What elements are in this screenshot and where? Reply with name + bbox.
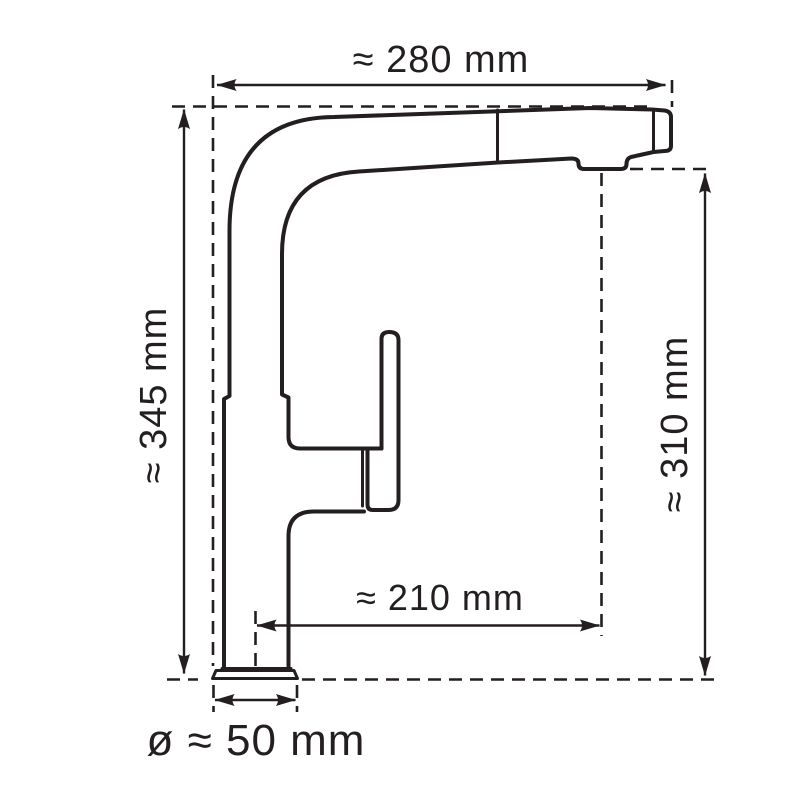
dim-label-middle-reach: ≈ 210 mm: [356, 577, 524, 618]
handle-lever: [368, 332, 399, 510]
base-plate: [213, 671, 298, 679]
diagram-canvas: ≈ 280 mm ≈ 345 mm ≈ 310 mm ≈ 210 mm ø ≈ …: [0, 0, 800, 800]
dim-label-right-height: ≈ 310 mm: [654, 336, 696, 513]
dim-label-base-diameter: ø ≈ 50 mm: [147, 716, 366, 765]
dim-label-top-width: ≈ 280 mm: [353, 39, 530, 81]
dim-label-left-height: ≈ 345 mm: [133, 307, 175, 484]
faucet-dimension-diagram: ≈ 280 mm ≈ 345 mm ≈ 310 mm ≈ 210 mm ø ≈ …: [0, 0, 800, 800]
dimension-labels: ≈ 280 mm ≈ 345 mm ≈ 310 mm ≈ 210 mm ø ≈ …: [133, 39, 696, 765]
body-shoulder: [289, 512, 365, 669]
